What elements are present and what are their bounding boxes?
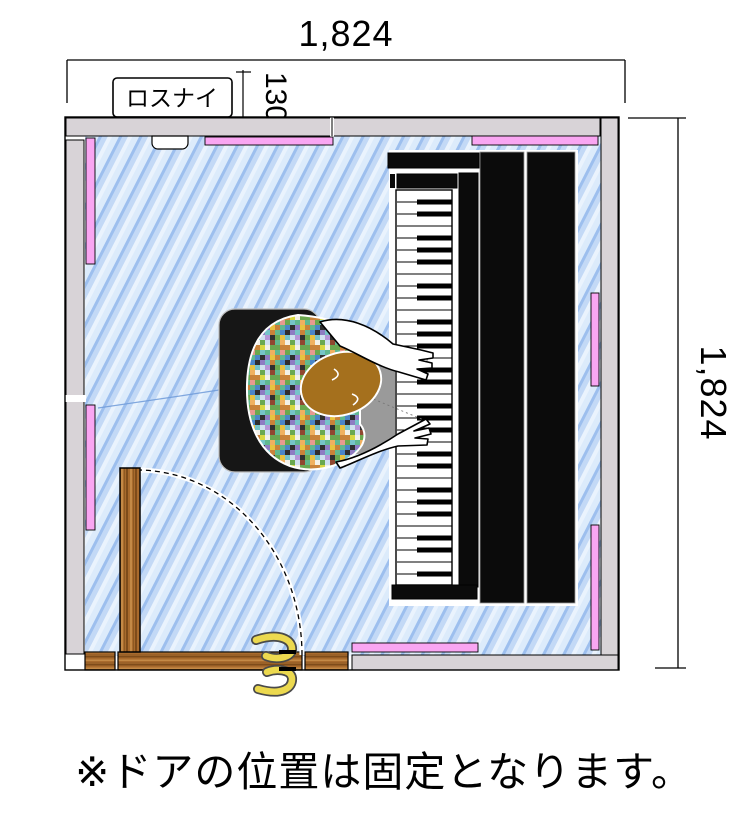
piano-fallboard	[397, 174, 457, 188]
right-dimension: 1,824	[628, 118, 734, 668]
vent-label-text: ロスナイ	[126, 85, 218, 111]
piano-body-panel-right	[527, 152, 575, 603]
piano-bottom-rail	[392, 585, 477, 599]
piano-cheek-rail	[459, 173, 478, 587]
right-wall	[601, 118, 618, 670]
bottom-wall-gray	[352, 655, 618, 670]
acoustic-panel-top-right	[472, 136, 598, 145]
left-wall-joint	[64, 395, 86, 402]
wall-thickness-text: 130	[259, 72, 292, 122]
door-leaf	[120, 468, 140, 652]
piano-body-panel-left	[480, 152, 524, 603]
acoustic-panel-left-upper	[86, 138, 95, 264]
top-dimension-text: 1,824	[298, 13, 393, 54]
right-dimension-text: 1,824	[693, 345, 734, 440]
door-latch-mark-top	[279, 650, 296, 654]
piano-keyboard	[396, 190, 452, 585]
acoustic-panel-right-lower	[591, 525, 599, 650]
door-position-note: ※ドアの位置は固定となります。	[75, 749, 693, 795]
bottom-wall-wood-1	[85, 652, 115, 670]
acoustic-panel-bottom	[352, 643, 478, 652]
acoustic-panel-left-lower	[86, 405, 95, 530]
vent-opening	[152, 136, 188, 149]
piano-top-rail	[388, 153, 479, 168]
acoustic-panel-top-left	[205, 137, 333, 145]
door-latch-mark-bottom	[279, 667, 296, 671]
bottom-wall-wood-3	[305, 652, 348, 670]
floor-plan-drawing: 1,824 ロスナイ 130	[0, 0, 753, 817]
floor-plan-page: 1,824 ロスナイ 130	[0, 0, 753, 817]
acoustic-panel-right-upper	[591, 293, 599, 386]
